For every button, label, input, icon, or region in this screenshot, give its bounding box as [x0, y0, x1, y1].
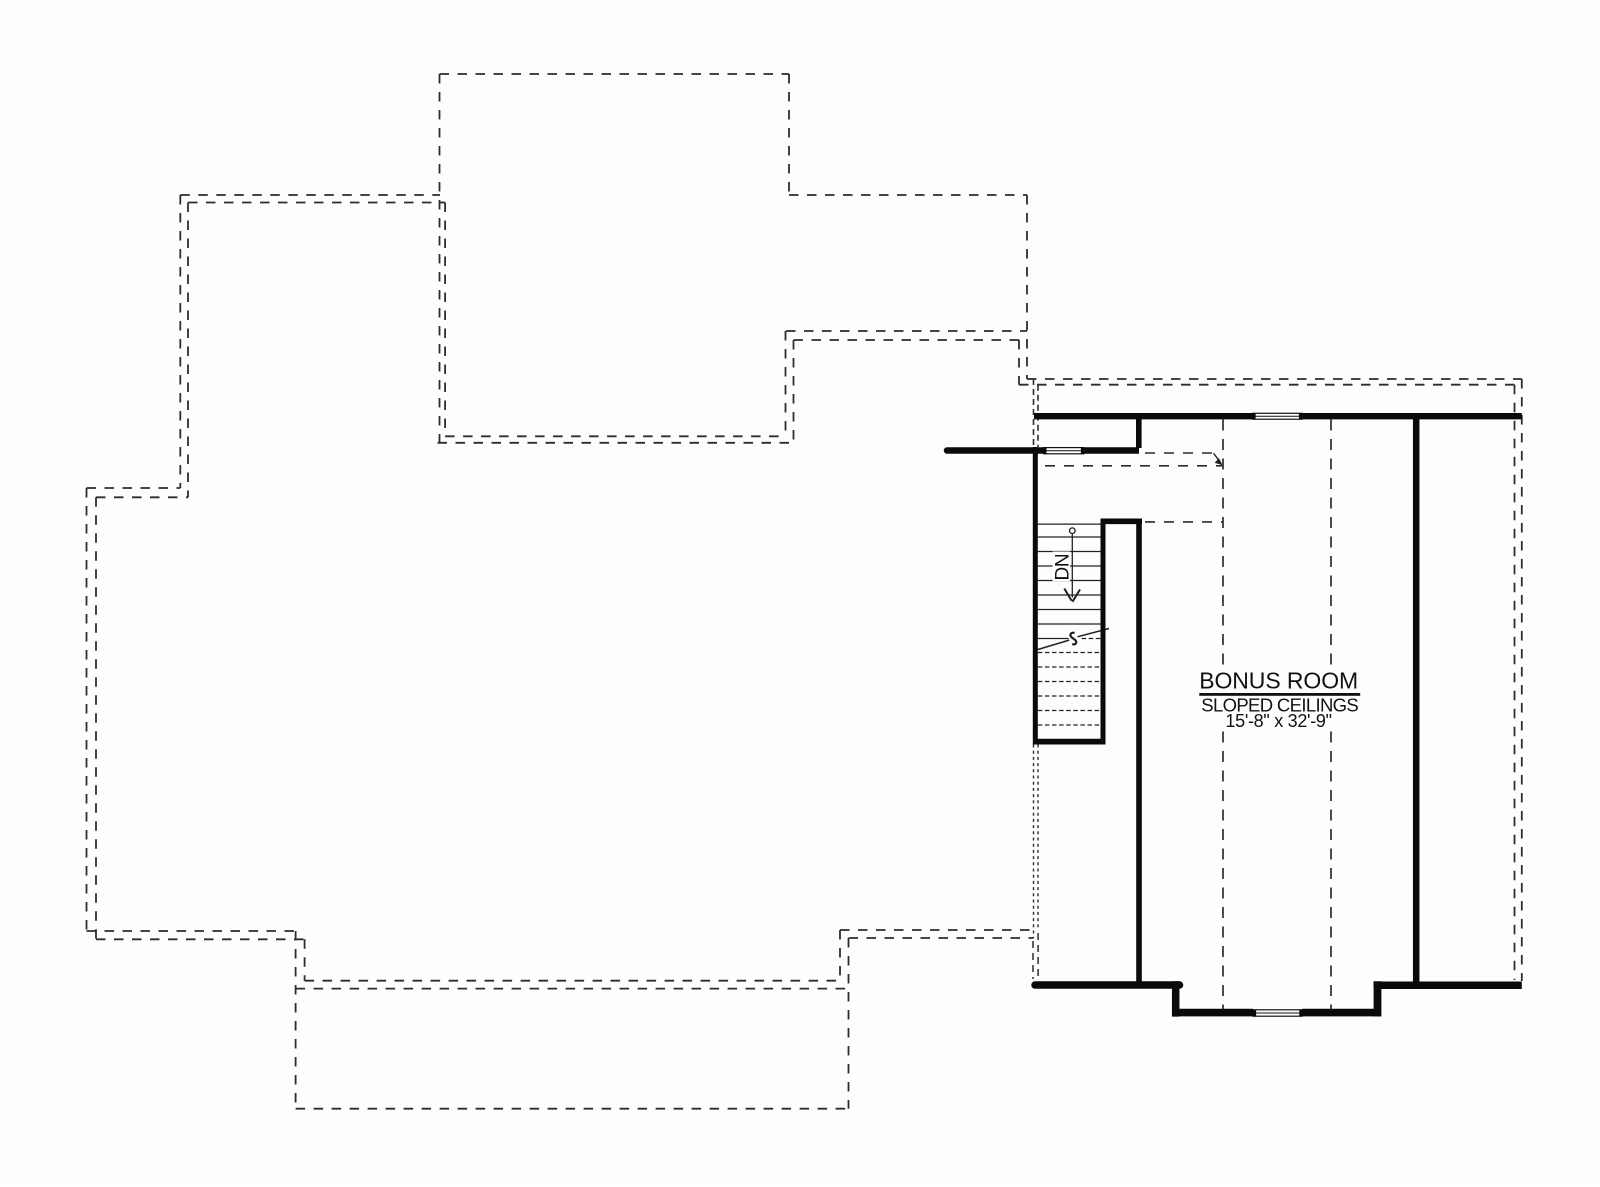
svg-text:BONUS ROOM: BONUS ROOM: [1199, 668, 1358, 694]
svg-text:DN: DN: [1052, 554, 1073, 581]
svg-text:15'-8" x 32'-9": 15'-8" x 32'-9": [1225, 711, 1332, 731]
